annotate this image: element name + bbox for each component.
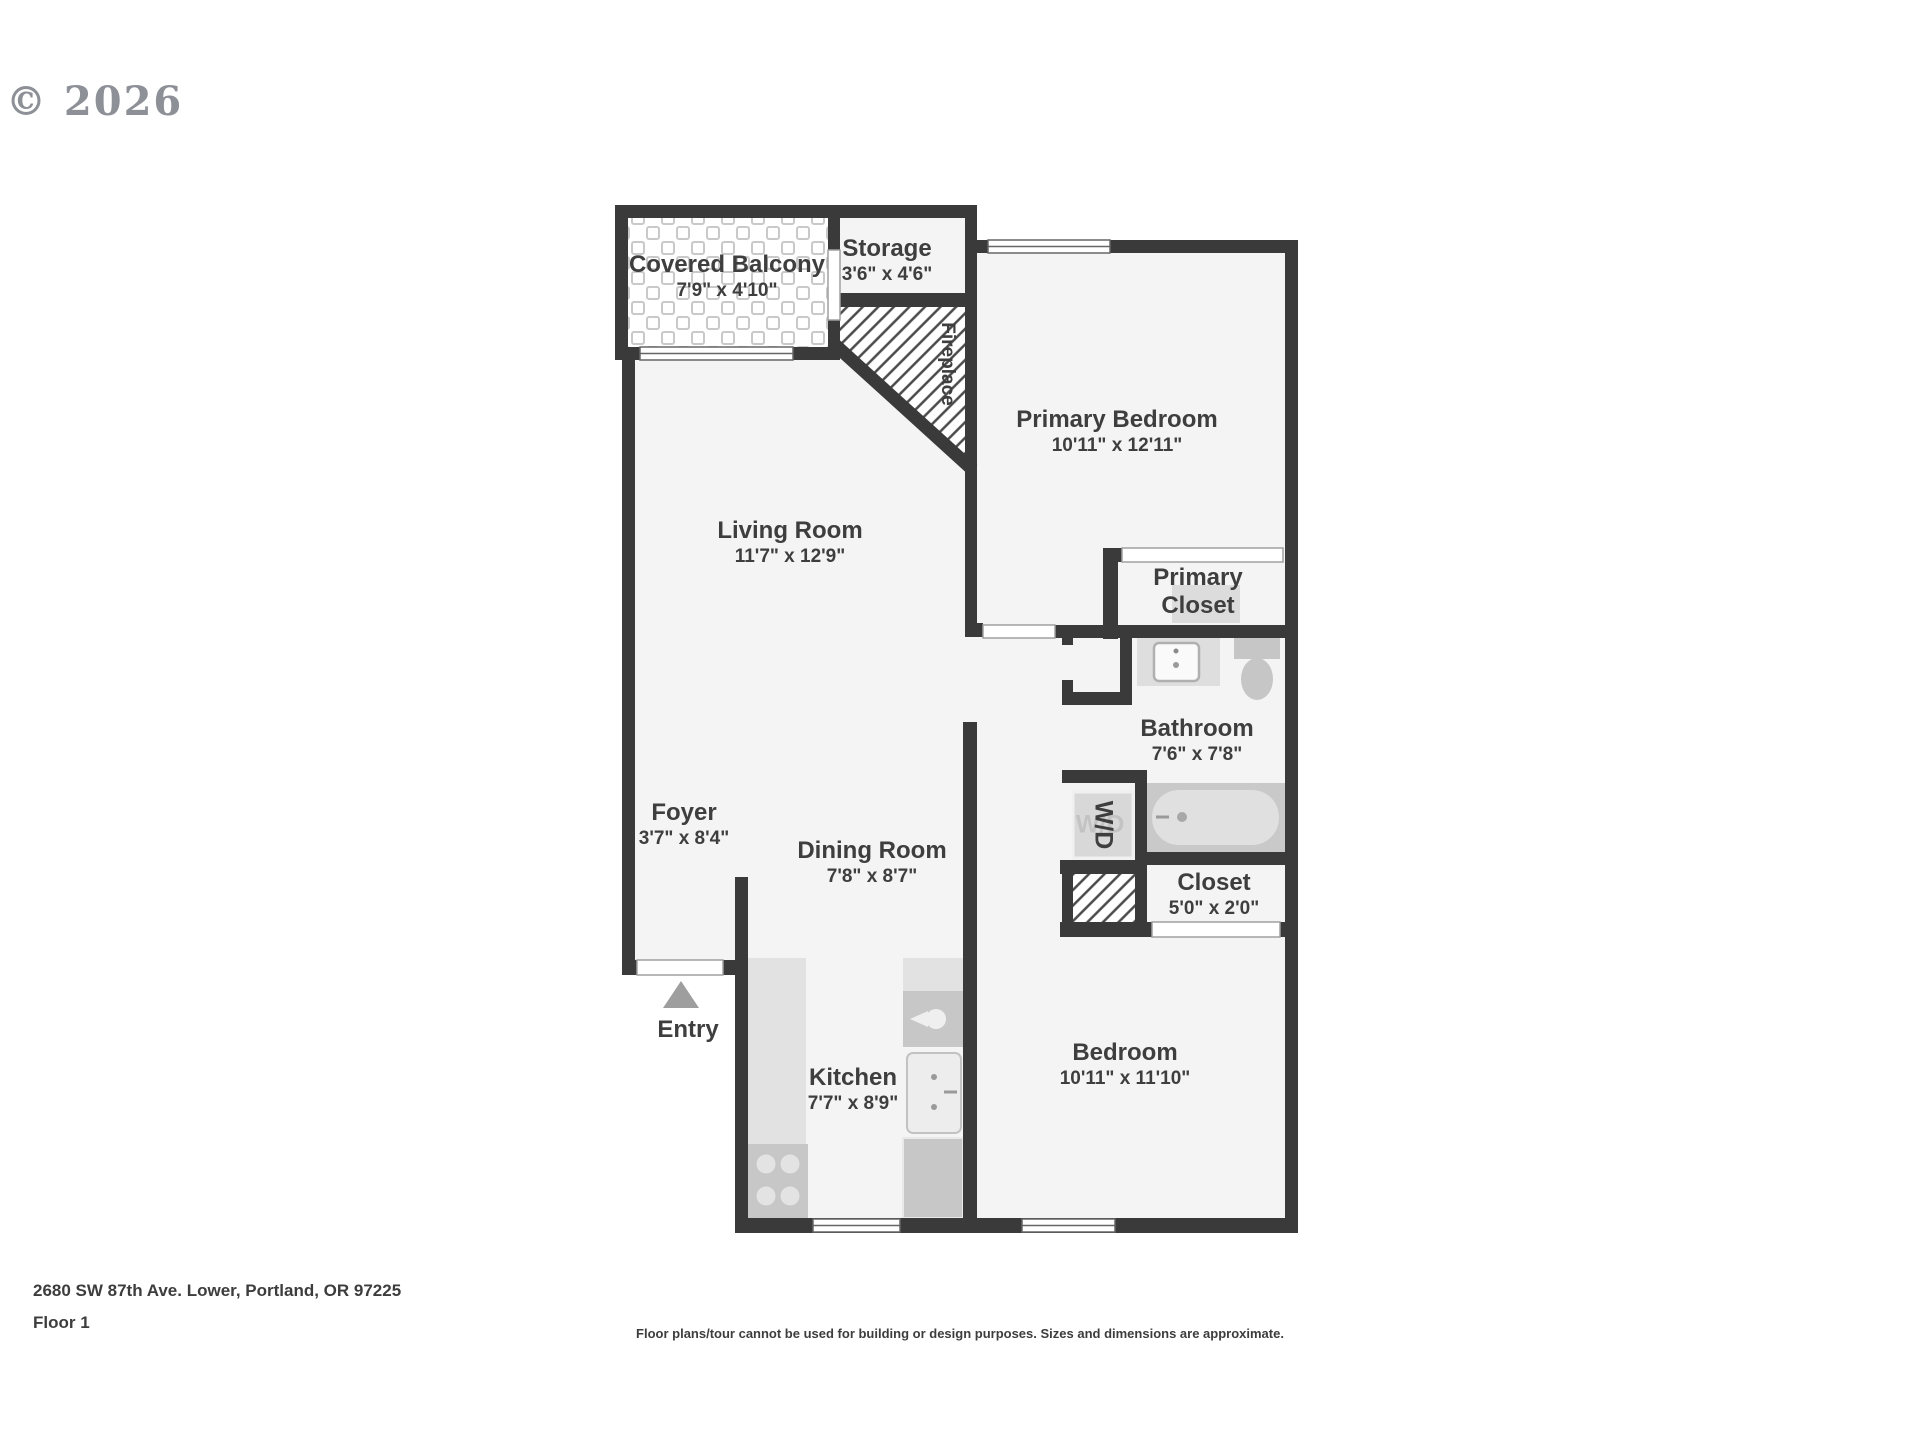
room-label-primary-bedroom: Primary Bedroom 10'11" x 12'11" bbox=[1016, 406, 1217, 458]
room-label-foyer: Foyer 3'7" x 8'4" bbox=[639, 799, 729, 851]
floor-plan-page: © 2026 bbox=[0, 0, 1920, 1440]
cooktop-icon bbox=[748, 1144, 808, 1218]
kitchen-window bbox=[813, 1219, 900, 1232]
linen-closet-opening bbox=[1062, 645, 1073, 680]
bathtub-icon bbox=[1143, 783, 1288, 852]
entry-arrow-icon bbox=[663, 981, 699, 1008]
disclaimer-text: Floor plans/tour cannot be used for buil… bbox=[0, 1326, 1920, 1341]
kitchen-counter-right bbox=[903, 958, 963, 991]
primary-closet-opening bbox=[1122, 548, 1283, 562]
room-label-storage: Storage 3'6" x 4'6" bbox=[842, 235, 932, 287]
entry-door-opening bbox=[637, 960, 723, 975]
room-label-fireplace: Fireplace bbox=[933, 322, 961, 405]
property-address: 2680 SW 87th Ave. Lower, Portland, OR 97… bbox=[33, 1281, 401, 1301]
room-label-dining-room: Dining Room 7'8" x 8'7" bbox=[797, 837, 946, 889]
floor-plan-drawing bbox=[0, 0, 1920, 1440]
closet-door bbox=[1152, 922, 1280, 937]
balcony-slider-window bbox=[640, 347, 793, 360]
primary-bedroom-door bbox=[983, 625, 1055, 638]
room-label-living-room: Living Room 11'7" x 12'9" bbox=[717, 517, 862, 569]
wd-label: W/D bbox=[1089, 801, 1118, 850]
room-label-bathroom: Bathroom 7'6" x 7'8" bbox=[1140, 715, 1253, 767]
bedroom-window bbox=[1022, 1219, 1115, 1232]
storage-opening bbox=[828, 250, 840, 320]
room-label-kitchen: Kitchen 7'7" x 8'9" bbox=[808, 1064, 898, 1116]
kitchen-sink-icon bbox=[903, 991, 963, 1047]
room-label-closet: Closet 5'0" x 2'0" bbox=[1169, 869, 1259, 921]
kitchen-counter-left bbox=[748, 958, 806, 1144]
room-label-primary-closet: Primary Closet bbox=[1133, 564, 1263, 620]
wd-closet-opening bbox=[1060, 792, 1072, 858]
refrigerator-icon bbox=[907, 1053, 961, 1133]
vanity-sink-icon bbox=[1137, 638, 1220, 686]
copyright-watermark: © 2026 bbox=[6, 78, 183, 125]
room-label-covered-balcony: Covered Balcony 7'9" x 4'10" bbox=[629, 251, 825, 303]
room-label-bedroom: Bedroom 10'11" x 11'10" bbox=[1060, 1039, 1191, 1091]
primary-bedroom-window bbox=[988, 240, 1110, 253]
mechanical-chase-hatch bbox=[1073, 874, 1135, 922]
room-label-entry: Entry bbox=[657, 1016, 718, 1044]
kitchen-appliance bbox=[903, 1138, 963, 1218]
